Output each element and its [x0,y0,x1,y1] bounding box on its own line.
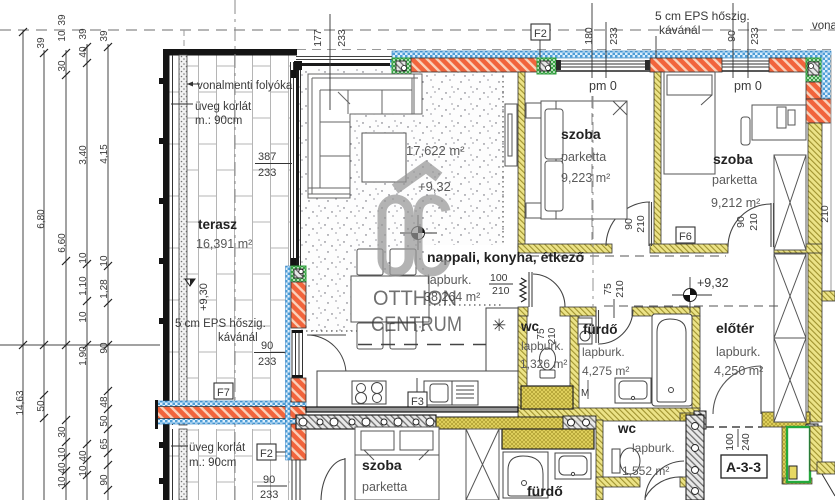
svg-text:10: 10 [78,465,89,477]
svg-text:4,275 m²: 4,275 m² [582,364,629,378]
svg-text:9,223 m²: 9,223 m² [561,171,610,185]
svg-text:10: 10 [57,447,68,459]
svg-text:kávánál: kávánál [659,23,700,37]
svg-text:m.: 90cm: m.: 90cm [189,457,236,469]
svg-text:233: 233 [260,489,278,500]
svg-text:65: 65 [99,438,110,450]
svg-text:39: 39 [36,37,47,49]
svg-text:1,90: 1,90 [78,346,89,366]
svg-text:parketta: parketta [712,173,757,187]
svg-text:pm 0: pm 0 [589,79,617,93]
svg-text:177: 177 [312,29,324,47]
svg-text:16,391 m²: 16,391 m² [196,237,252,251]
svg-text:39: 39 [99,30,110,42]
svg-text:40: 40 [57,462,68,474]
svg-text:387: 387 [258,151,276,163]
svg-text:1,28: 1,28 [99,279,110,299]
svg-text:50: 50 [99,415,110,427]
svg-text:233: 233 [258,356,276,368]
svg-text:6,80: 6,80 [36,209,47,229]
svg-text:4,250 m²: 4,250 m² [714,364,763,378]
svg-text:50: 50 [36,400,47,412]
svg-text:210: 210 [547,327,558,344]
svg-text:90: 90 [726,30,738,42]
svg-text:14,63: 14,63 [15,390,26,415]
svg-text:1,552 m²: 1,552 m² [622,464,669,478]
svg-text:210: 210 [635,215,647,233]
svg-text:39: 39 [57,14,68,26]
svg-text:F6: F6 [679,231,692,243]
svg-text:39: 39 [78,28,89,40]
svg-text:lapburk.: lapburk. [582,345,625,359]
svg-text:240: 240 [740,433,752,451]
svg-text:17,622 m²: 17,622 m² [406,143,465,158]
svg-text:210: 210 [748,213,760,231]
svg-text:5 cm EPS hőszig.: 5 cm EPS hőszig. [655,9,750,23]
svg-text:F3: F3 [411,396,424,408]
svg-text:210: 210 [614,280,626,298]
svg-text:90: 90 [623,218,635,230]
svg-text:szoba: szoba [362,457,402,473]
svg-text:fürdő: fürdő [583,322,618,337]
svg-text:75: 75 [602,283,614,295]
svg-text:210: 210 [819,205,831,223]
svg-text:OTTHON: OTTHON [373,287,457,310]
svg-text:m.: 90cm: m.: 90cm [195,115,242,127]
svg-text:4,15: 4,15 [99,144,110,164]
svg-text:90: 90 [99,342,110,354]
svg-text:30: 30 [57,426,68,438]
svg-text:100: 100 [724,433,736,451]
svg-text:vonalmenti folyóka: vonalmenti folyóka [197,80,293,92]
svg-text:üveg korlát: üveg korlát [195,101,252,113]
svg-text:90: 90 [735,216,747,228]
svg-text:CENTRUM: CENTRUM [371,313,462,336]
svg-text:40: 40 [78,450,89,462]
svg-text:10: 10 [57,30,68,42]
svg-text:6,60: 6,60 [57,233,68,253]
svg-text:F2: F2 [534,28,547,40]
svg-text:5 cm EPS hőszig.: 5 cm EPS hőszig. [175,318,266,330]
svg-text:✳: ✳ [492,316,506,335]
svg-text:90: 90 [261,340,273,352]
svg-text:lapburk.: lapburk. [716,345,760,359]
svg-text:233: 233 [749,27,761,45]
svg-text:terasz: terasz [198,217,237,232]
svg-text:10: 10 [99,255,110,267]
svg-text:233: 233 [258,167,276,179]
svg-text:233: 233 [608,27,620,45]
svg-text:90: 90 [263,474,275,486]
svg-text:előtér: előtér [716,320,755,336]
svg-text:180: 180 [583,27,595,45]
svg-text:+9,32: +9,32 [697,276,729,290]
svg-text:10: 10 [57,476,68,488]
svg-text:vona: vona [812,20,835,32]
svg-text:210: 210 [492,285,510,297]
svg-text:233: 233 [336,29,348,47]
svg-text:üveg korlát: üveg korlát [189,442,246,454]
svg-text:10: 10 [78,252,89,264]
svg-text:+9,30: +9,30 [198,283,210,311]
svg-text:parketta: parketta [362,480,407,494]
svg-text:F7: F7 [217,387,230,399]
svg-text:+9,32: +9,32 [418,179,451,194]
svg-text:A-3-3: A-3-3 [726,459,761,475]
svg-text:9,212 m²: 9,212 m² [711,196,760,210]
svg-text:1,326 m²: 1,326 m² [520,357,567,371]
svg-text:pm 0: pm 0 [734,79,762,93]
svg-text:parketta: parketta [561,150,606,164]
svg-text:lapburk.: lapburk. [632,441,675,455]
svg-text:kávánál: kávánál [218,332,258,344]
svg-text:90: 90 [99,474,110,486]
svg-text:szoba: szoba [713,151,753,167]
svg-text:1,10: 1,10 [78,276,89,296]
svg-text:3,40: 3,40 [78,145,89,165]
svg-text:10: 10 [78,311,89,323]
svg-text:szoba: szoba [561,126,601,142]
svg-text:nappali, konyha, étkező: nappali, konyha, étkező [427,249,584,265]
svg-text:100: 100 [490,272,508,284]
svg-text:wc: wc [617,421,637,436]
svg-text:fürdő: fürdő [527,483,563,499]
svg-text:30: 30 [57,60,68,72]
svg-text:75: 75 [536,328,547,340]
svg-text:40: 40 [78,46,89,58]
svg-text:F2: F2 [260,448,273,460]
svg-text:48: 48 [99,396,110,408]
